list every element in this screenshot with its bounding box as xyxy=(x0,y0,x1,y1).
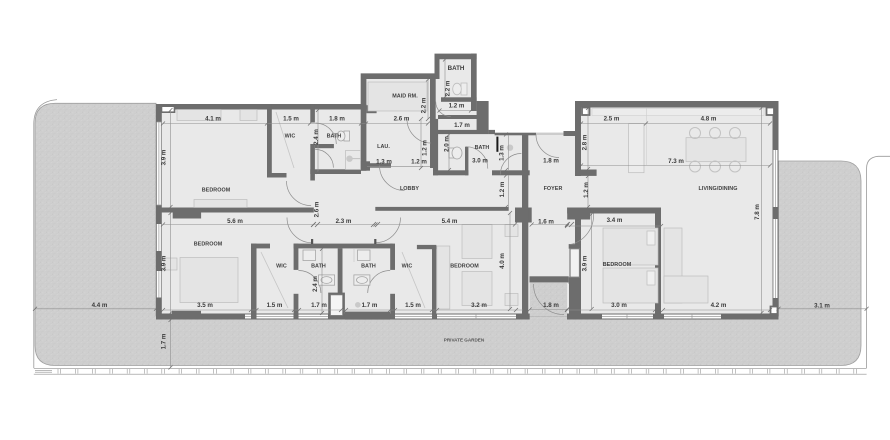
svg-text:2.5 m: 2.5 m xyxy=(604,116,620,123)
svg-text:BATH: BATH xyxy=(327,134,342,140)
svg-text:2.6 m: 2.6 m xyxy=(394,116,410,123)
svg-text:LOBBY: LOBBY xyxy=(400,186,419,192)
svg-text:BATH: BATH xyxy=(311,264,326,270)
svg-text:FOYER: FOYER xyxy=(544,186,563,192)
svg-text:3.9 m: 3.9 m xyxy=(582,255,589,271)
svg-text:1.2 m: 1.2 m xyxy=(449,103,465,110)
svg-text:BEDROOM: BEDROOM xyxy=(450,264,479,270)
svg-text:3.9 m: 3.9 m xyxy=(161,149,168,165)
svg-text:BEDROOM: BEDROOM xyxy=(603,262,632,268)
svg-text:4.0 m: 4.0 m xyxy=(499,253,506,269)
svg-text:1.2 m: 1.2 m xyxy=(411,159,427,166)
svg-text:WIC: WIC xyxy=(276,264,287,270)
svg-text:PRIVATE GARDEN: PRIVATE GARDEN xyxy=(444,338,485,343)
svg-text:4.2 m: 4.2 m xyxy=(711,302,727,309)
svg-text:1.5 m: 1.5 m xyxy=(405,302,421,309)
svg-text:4.4 m: 4.4 m xyxy=(92,302,108,309)
svg-text:1.2 m: 1.2 m xyxy=(422,140,429,156)
svg-text:7.3 m: 7.3 m xyxy=(668,158,684,165)
svg-text:1.7 m: 1.7 m xyxy=(454,122,470,129)
svg-text:2.0 m: 2.0 m xyxy=(444,136,451,152)
svg-text:1.8 m: 1.8 m xyxy=(543,302,559,309)
svg-text:2.8 m: 2.8 m xyxy=(582,134,589,150)
svg-text:1.7 m: 1.7 m xyxy=(311,302,327,309)
svg-text:5.6 m: 5.6 m xyxy=(227,218,243,225)
svg-text:MAID RM.: MAID RM. xyxy=(392,94,418,100)
svg-text:3.4 m: 3.4 m xyxy=(607,217,623,224)
svg-text:3.0 m: 3.0 m xyxy=(472,158,488,165)
svg-text:7.8 m: 7.8 m xyxy=(754,204,761,220)
svg-text:2.6 m: 2.6 m xyxy=(314,201,321,217)
svg-text:2.2 m: 2.2 m xyxy=(421,97,428,113)
svg-text:1.2 m: 1.2 m xyxy=(583,182,590,198)
svg-text:1.8 m: 1.8 m xyxy=(329,116,345,123)
svg-text:1.7 m: 1.7 m xyxy=(362,302,378,309)
svg-text:3.0 m: 3.0 m xyxy=(611,302,627,309)
svg-text:2.4 m: 2.4 m xyxy=(313,129,320,145)
svg-text:2.2 m: 2.2 m xyxy=(445,80,452,96)
svg-text:1.5 m: 1.5 m xyxy=(267,302,283,309)
svg-text:3.1 m: 3.1 m xyxy=(814,303,830,310)
svg-text:1.6 m: 1.6 m xyxy=(538,219,554,226)
svg-text:1.5 m: 1.5 m xyxy=(283,116,299,123)
svg-text:WIC: WIC xyxy=(402,264,413,270)
svg-text:2.4 m: 2.4 m xyxy=(312,276,319,292)
svg-text:5.4 m: 5.4 m xyxy=(442,218,458,225)
svg-text:BATH: BATH xyxy=(361,264,376,270)
svg-text:WIC: WIC xyxy=(285,134,296,140)
svg-text:1.3 m: 1.3 m xyxy=(376,159,392,166)
svg-text:3.9 m: 3.9 m xyxy=(161,255,168,271)
svg-text:2.3 m: 2.3 m xyxy=(336,218,352,225)
svg-text:BEDROOM: BEDROOM xyxy=(202,188,231,194)
svg-text:1.8 m: 1.8 m xyxy=(543,158,559,165)
svg-text:1.2 m: 1.2 m xyxy=(499,181,506,197)
svg-text:1.3 m: 1.3 m xyxy=(499,145,506,161)
svg-text:BEDROOM: BEDROOM xyxy=(194,242,223,248)
svg-text:LIVING/DINING: LIVING/DINING xyxy=(699,186,738,192)
svg-text:3.2 m: 3.2 m xyxy=(471,302,487,309)
svg-text:LAU.: LAU. xyxy=(377,144,390,150)
svg-text:BATH: BATH xyxy=(475,145,490,151)
svg-text:4.1 m: 4.1 m xyxy=(205,116,221,123)
svg-text:4.8 m: 4.8 m xyxy=(701,116,717,123)
svg-text:3.5 m: 3.5 m xyxy=(197,302,213,309)
svg-text:1.7 m: 1.7 m xyxy=(161,333,168,349)
svg-text:BATH: BATH xyxy=(448,65,465,72)
